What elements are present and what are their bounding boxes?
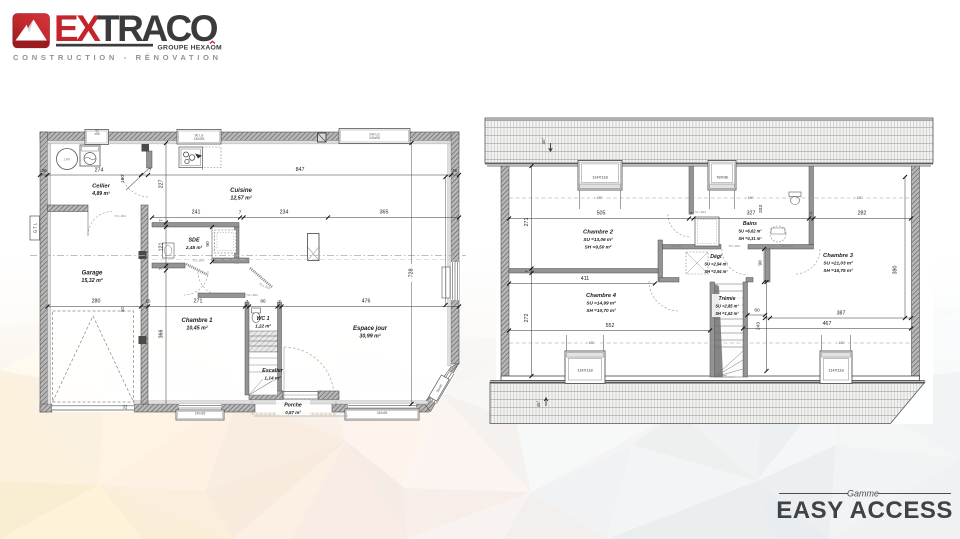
svg-text:114X118: 114X118 [577,367,593,372]
svg-text:467: 467 [823,321,832,327]
svg-text:1,14 m²: 1,14 m² [264,376,281,381]
svg-text:90: 90 [205,241,211,247]
svg-text:Trémie: Trémie [719,296,736,302]
svg-text:GROUPE HEXAOM: GROUPE HEXAOM [158,44,223,51]
svg-text:WC 1: WC 1 [257,316,270,322]
svg-text:327: 327 [747,211,756,217]
svg-text:140x95: 140x95 [195,412,206,416]
svg-text:12,57 m²: 12,57 m² [230,196,251,202]
svg-text:387: 387 [837,311,846,317]
svg-text:≈ 180: ≈ 180 [836,341,845,345]
svg-text:EX: EX [54,8,101,49]
svg-text:≈ 180: ≈ 180 [586,341,595,345]
svg-text:≈ 180: ≈ 180 [745,196,754,200]
svg-text:73 x 204: 73 x 204 [114,214,126,218]
svg-text:Cellier: Cellier [92,184,110,190]
svg-text:73 x 204: 73 x 204 [728,244,740,248]
svg-text:180: 180 [120,175,126,183]
svg-text:x95: x95 [94,132,99,136]
svg-text:LAV: LAV [64,158,71,162]
svg-text:271: 271 [194,299,203,305]
svg-text:114X118: 114X118 [592,174,608,179]
svg-text:280: 280 [92,299,101,305]
svg-text:15,32 m²: 15,32 m² [81,278,102,284]
svg-text:7: 7 [239,210,242,215]
svg-text:EASY ACCESS: EASY ACCESS [776,497,953,524]
svg-text:SU =2,85 m²: SU =2,85 m² [715,303,739,308]
svg-text:2,45 m²: 2,45 m² [185,245,203,250]
svg-text:365: 365 [380,210,389,216]
svg-text:411: 411 [581,276,589,282]
svg-text:Bains: Bains [743,221,757,227]
svg-text:SDE: SDE [188,238,199,244]
svg-text:SH =10,70 m²: SH =10,70 m² [586,308,616,313]
svg-text:86: 86 [260,299,266,305]
svg-text:728: 728 [409,269,415,278]
svg-text:50: 50 [120,307,125,312]
svg-text:Espace jour: Espace jour [353,326,388,332]
svg-text:SU =6,62 m²: SU =6,62 m² [738,228,762,233]
svg-text:Dégt: Dégt [710,254,722,260]
svg-text:4,89 m²: 4,89 m² [91,191,110,197]
svg-text:SU =13,06 m²: SU =13,06 m² [583,237,613,242]
svg-text:Chambre 1: Chambre 1 [181,318,213,324]
svg-text:G T L: G T L [33,222,38,233]
svg-text:60: 60 [754,308,760,314]
svg-text:36: 36 [41,168,47,173]
svg-text:45°: 45° [536,400,541,407]
svg-text:Garage: Garage [82,271,103,277]
svg-text:SH =4,31 m²: SH =4,31 m² [738,236,762,241]
svg-text:73 x 204: 73 x 204 [192,259,204,263]
svg-text:476: 476 [362,299,371,305]
svg-text:0,57 m²: 0,57 m² [285,410,301,415]
svg-text:240x95: 240x95 [377,411,388,415]
svg-text:73 x 204: 73 x 204 [694,210,706,214]
svg-text:1,22 m²: 1,22 m² [255,324,271,329]
svg-text:73 x 204: 73 x 204 [670,244,682,248]
svg-text:240x95: 240x95 [369,136,380,140]
svg-text:SU =14,99 m²: SU =14,99 m² [586,300,616,305]
svg-text:227: 227 [159,180,165,189]
svg-text:SH =2,94 m²: SH =2,94 m² [704,269,728,274]
svg-text:243: 243 [756,322,762,330]
svg-text:Chambre 2: Chambre 2 [583,230,614,236]
svg-text:121: 121 [159,243,165,252]
svg-text:Escalier: Escalier [262,368,284,374]
svg-text:CONSTRUCTION - RÉNOVATION: CONSTRUCTION - RÉNOVATION [13,53,222,62]
svg-text:10,45 m²: 10,45 m² [186,326,207,332]
svg-text:274: 274 [95,168,104,174]
svg-text:SH =1,62 m²: SH =1,62 m² [715,311,739,316]
svg-text:847: 847 [296,167,305,173]
svg-text:73 x 204: 73 x 204 [246,293,258,297]
svg-text:114X118: 114X118 [828,367,844,372]
svg-text:7: 7 [149,168,152,173]
svg-text:366: 366 [159,330,165,339]
svg-text:SH =9,50 m²: SH =9,50 m² [585,244,612,249]
svg-text:234: 234 [280,210,289,216]
svg-text:203: 203 [758,205,764,213]
svg-text:30,99 m²: 30,99 m² [359,334,380,340]
svg-text:15: 15 [145,299,151,304]
svg-text:TRACO: TRACO [97,8,218,49]
svg-text:Porche: Porche [284,403,302,409]
svg-text:505: 505 [597,211,606,217]
svg-text:Chambre 4: Chambre 4 [586,293,617,299]
svg-text:90: 90 [758,260,764,266]
svg-text:282: 282 [858,211,867,217]
svg-text:36: 36 [452,168,458,173]
svg-text:272: 272 [524,314,530,323]
svg-text:241: 241 [192,210,201,216]
svg-text:Cuisine: Cuisine [230,188,252,194]
svg-text:22: 22 [123,404,128,409]
svg-text:SU =2,94 m²: SU =2,94 m² [704,261,728,266]
svg-text:552: 552 [606,323,615,329]
svg-text:Chambre 3: Chambre 3 [823,253,854,259]
svg-text:≈ 180: ≈ 180 [854,196,863,200]
svg-text:≈ 180: ≈ 180 [594,196,603,200]
svg-text:SU =21,03 m²: SU =21,03 m² [823,260,853,265]
svg-text:73 x 204: 73 x 204 [781,244,793,248]
svg-text:SH =15,75 m²: SH =15,75 m² [823,268,853,273]
svg-text:390: 390 [893,266,899,275]
svg-text:45°: 45° [541,137,546,144]
svg-text:78X98: 78X98 [716,174,728,179]
svg-text:271: 271 [524,218,530,227]
svg-text:140x95: 140x95 [194,137,205,141]
